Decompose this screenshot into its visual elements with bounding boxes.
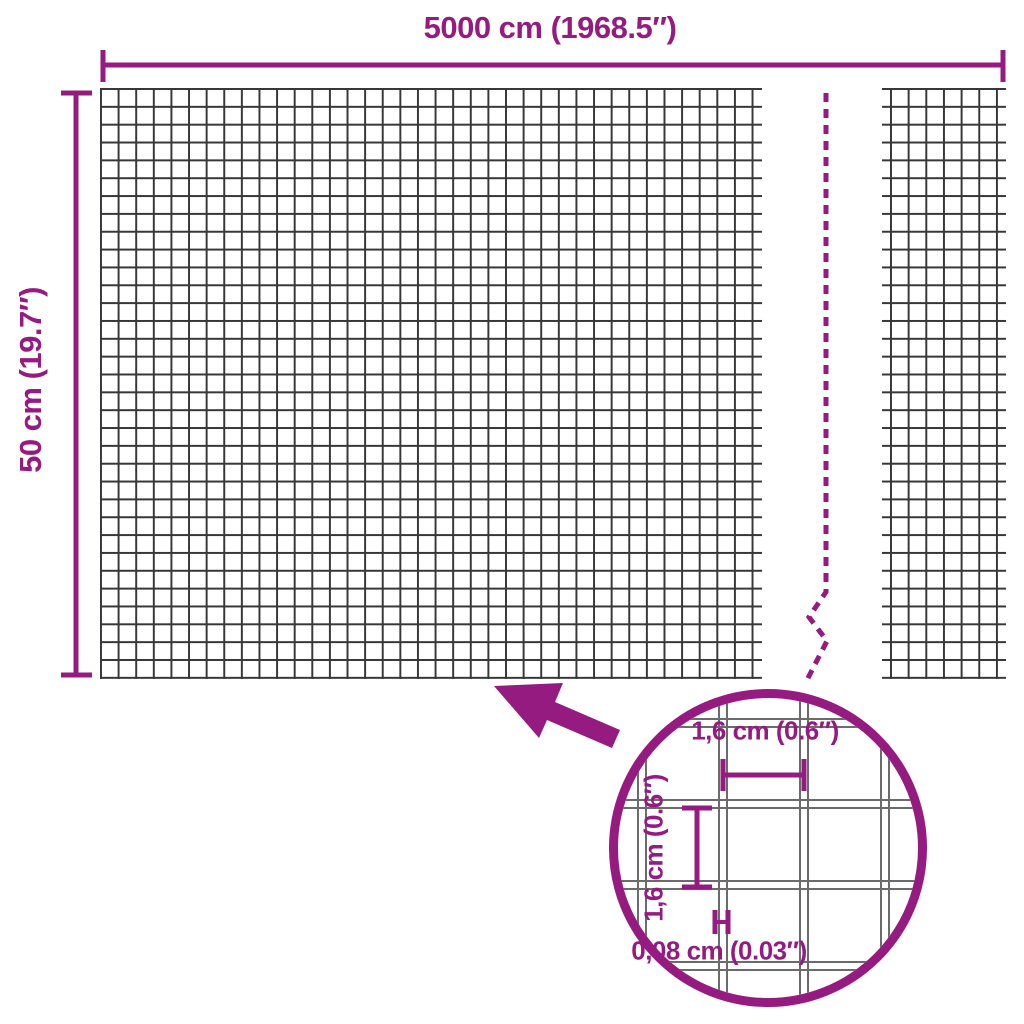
lens-cell-height-label: 1,6 cm (0.6″) — [639, 774, 670, 922]
mesh-vertical-wires — [100, 88, 754, 679]
mesh-vertical-wires — [890, 88, 998, 679]
wire-thickness-label: 0,08 cm (0.03″) — [631, 936, 807, 967]
mesh-panel-main — [100, 88, 762, 679]
mesh-panel-right — [882, 88, 1006, 679]
break-line — [807, 93, 827, 680]
lens-cell-width-label: 1,6 cm (0.6″) — [691, 716, 839, 747]
zoom-arrow-icon — [494, 683, 620, 748]
width-dimension-label: 5000 cm (1968.5″) — [424, 10, 677, 46]
height-dimension-label: 50 cm (19.7″) — [13, 287, 49, 473]
